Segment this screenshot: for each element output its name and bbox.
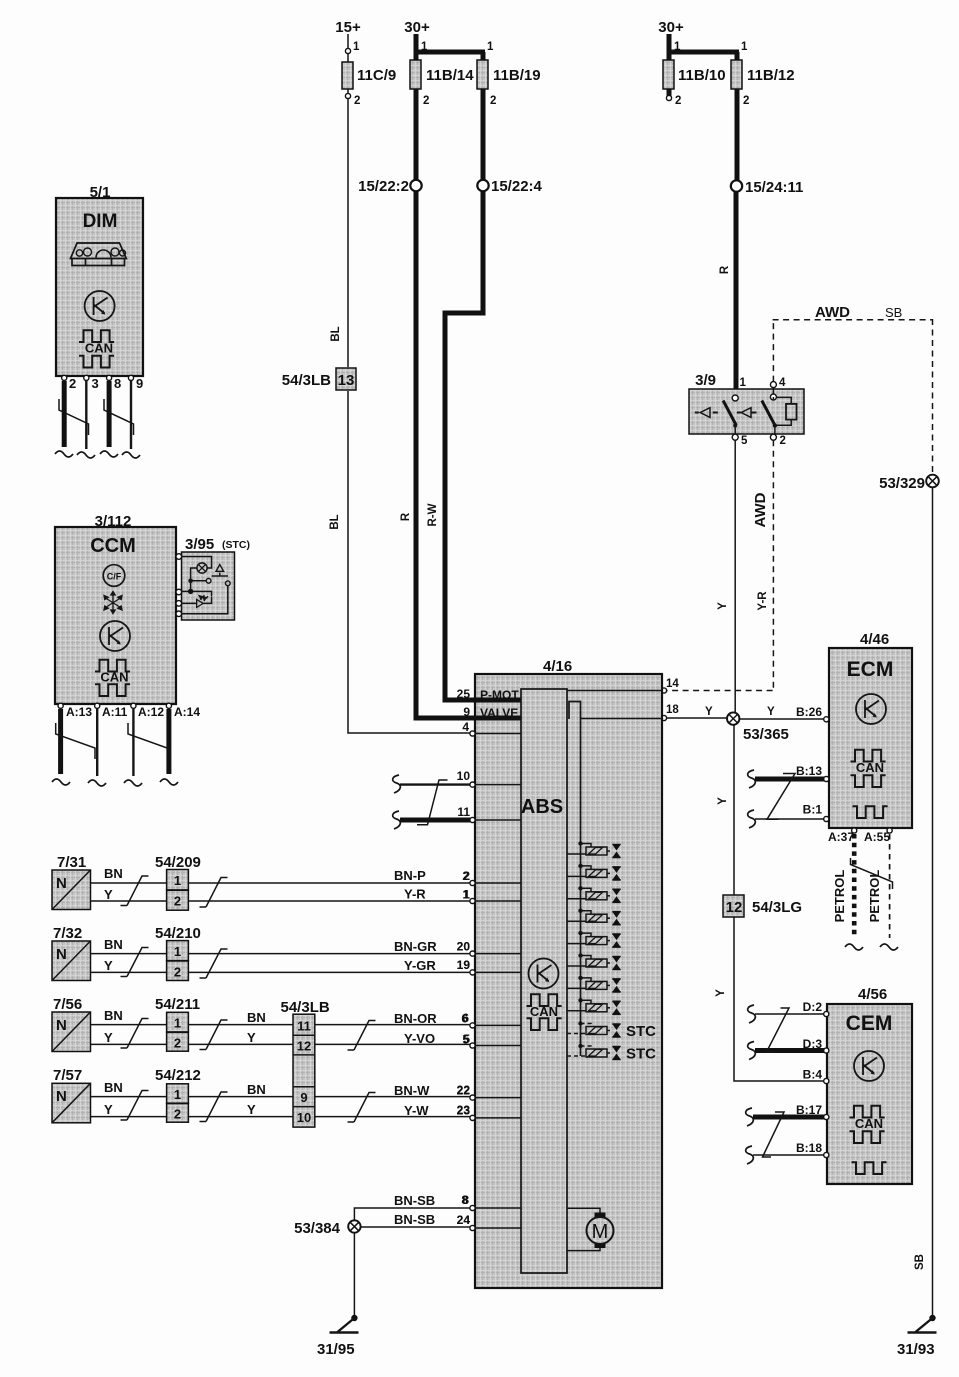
svg-text:VALVE: VALVE [480,706,518,720]
svg-text:ABS: ABS [521,796,563,818]
svg-text:11B/14: 11B/14 [426,67,474,84]
svg-text:8: 8 [462,1193,469,1207]
svg-text:B:4: B:4 [803,1068,823,1082]
svg-text:BN-P: BN-P [394,868,426,883]
svg-text:Y-GR: Y-GR [404,958,436,973]
svg-text:30+: 30+ [404,19,430,36]
svg-text:54/3LB: 54/3LB [282,372,331,389]
svg-text:AWD: AWD [815,304,850,321]
svg-text:CAN: CAN [855,1116,883,1131]
svg-text:AWD: AWD [752,492,769,527]
svg-text:12: 12 [726,899,743,916]
svg-text:2: 2 [423,95,429,107]
svg-text:2: 2 [490,95,496,107]
svg-text:R: R [400,512,412,521]
svg-text:Y: Y [717,797,729,805]
svg-text:P-MOT: P-MOT [480,688,519,702]
svg-text:15/22:2: 15/22:2 [358,178,409,195]
svg-text:8: 8 [114,376,121,391]
svg-text:SB: SB [885,305,902,320]
svg-text:N: N [56,1088,67,1105]
svg-text:BL: BL [329,514,341,529]
svg-text:54/3LG: 54/3LG [752,899,802,916]
svg-text:2: 2 [174,1036,181,1051]
svg-text:1: 1 [174,1087,181,1102]
svg-text:5: 5 [463,1032,470,1046]
svg-text:A:12: A:12 [138,705,164,719]
svg-text:2: 2 [463,869,470,883]
svg-text:Y-R: Y-R [757,591,769,611]
svg-text:Y: Y [104,887,113,902]
svg-text:2: 2 [174,894,181,909]
svg-text:53/365: 53/365 [743,726,789,743]
svg-text:30+: 30+ [658,19,684,36]
svg-text:1: 1 [674,41,681,53]
svg-text:CCM: CCM [90,535,136,557]
svg-text:Y: Y [104,958,113,973]
svg-text:BN: BN [247,1082,266,1097]
svg-text:7/57: 7/57 [53,1067,82,1084]
svg-text:CAN: CAN [856,760,884,775]
svg-text:11: 11 [297,1019,311,1034]
svg-text:15/24:11: 15/24:11 [745,179,803,196]
svg-text:DIM: DIM [83,211,118,232]
svg-text:2: 2 [69,376,76,391]
svg-text:31/93: 31/93 [897,1341,935,1358]
svg-text:1: 1 [421,41,428,53]
svg-text:15+: 15+ [335,19,361,36]
svg-text:A:14: A:14 [174,705,200,719]
svg-text:CAN: CAN [85,341,113,356]
svg-text:18: 18 [666,704,679,716]
svg-text:12: 12 [297,1039,311,1054]
svg-text:11B/10: 11B/10 [678,67,726,84]
svg-text:54/211: 54/211 [155,996,200,1013]
svg-text:4/56: 4/56 [858,986,887,1003]
svg-text:11B/19: 11B/19 [493,67,541,84]
svg-text:C/F: C/F [107,572,122,582]
svg-text:1: 1 [353,41,360,53]
svg-text:3/95: 3/95 [185,536,214,553]
svg-text:BN: BN [104,937,123,952]
svg-text:7/32: 7/32 [53,925,82,942]
svg-text:Y: Y [715,989,727,997]
svg-text:Y-W: Y-W [404,1103,429,1118]
svg-text:3: 3 [92,376,99,391]
svg-text:A:55: A:55 [864,830,890,844]
svg-text:1: 1 [741,41,748,53]
svg-text:2: 2 [675,95,681,107]
svg-text:10: 10 [297,1110,311,1125]
svg-text:9: 9 [300,1090,307,1105]
svg-text:2: 2 [354,95,360,107]
svg-text:BN-W: BN-W [394,1083,430,1098]
svg-text:9: 9 [463,705,470,719]
svg-text:4/46: 4/46 [860,631,889,648]
svg-text:BN: BN [247,1010,266,1025]
svg-text:D:3: D:3 [803,1037,823,1051]
svg-text:BL: BL [330,326,342,341]
svg-text:SB: SB [914,1254,926,1270]
svg-text:15/22:4: 15/22:4 [491,178,543,195]
svg-text:1: 1 [174,873,181,888]
svg-text:CAN: CAN [530,1004,558,1019]
svg-text:N: N [56,1017,67,1034]
svg-text:4: 4 [779,377,786,389]
svg-text:3/112: 3/112 [95,513,132,530]
svg-text:1: 1 [463,888,470,902]
svg-text:4/16: 4/16 [543,658,572,675]
svg-text:53/329: 53/329 [879,475,925,492]
svg-text:3/9: 3/9 [695,372,716,389]
svg-text:PETROL: PETROL [832,870,847,923]
svg-text:R: R [719,265,731,274]
svg-text:13: 13 [338,372,355,389]
svg-text:2: 2 [743,95,749,107]
svg-text:1: 1 [740,377,747,389]
svg-text:STC: STC [626,1023,656,1040]
svg-text:R-W: R-W [427,503,439,526]
svg-text:22: 22 [457,1083,471,1097]
svg-text:N: N [56,875,67,892]
svg-text:D:2: D:2 [803,1000,823,1014]
svg-text:54/3LB: 54/3LB [281,999,330,1016]
svg-text:BN: BN [104,1080,123,1095]
svg-text:A:37: A:37 [828,830,854,844]
svg-text:B:17: B:17 [796,1103,822,1117]
svg-text:Y: Y [104,1030,113,1045]
svg-text:24: 24 [457,1213,471,1227]
svg-text:CAN: CAN [100,670,128,685]
svg-text:Y-VO: Y-VO [404,1031,435,1046]
svg-text:54/210: 54/210 [155,925,201,942]
svg-text:Y: Y [247,1102,256,1117]
svg-text:Y: Y [767,706,775,718]
svg-text:B:13: B:13 [796,764,822,778]
svg-text:B:26: B:26 [796,705,822,719]
svg-text:7/31: 7/31 [57,854,86,871]
svg-text:PETROL: PETROL [867,870,882,923]
svg-text:Y: Y [705,706,713,718]
svg-text:A:13: A:13 [66,705,92,719]
svg-text:31/95: 31/95 [317,1341,355,1358]
svg-text:19: 19 [457,958,471,972]
svg-text:5: 5 [741,435,748,447]
svg-text:N: N [56,946,67,963]
svg-text:11B/12: 11B/12 [747,67,795,84]
svg-text:6: 6 [462,1011,469,1025]
svg-text:CEM: CEM [846,1012,893,1035]
svg-text:ECM: ECM [847,658,894,681]
svg-text:54/209: 54/209 [155,854,201,871]
svg-text:54/212: 54/212 [155,1067,201,1084]
svg-text:1: 1 [174,1016,181,1031]
svg-text:5/1: 5/1 [90,184,111,201]
svg-text:2: 2 [174,965,181,980]
svg-text:BN: BN [104,866,123,881]
svg-text:B:1: B:1 [803,803,823,817]
svg-text:23: 23 [457,1103,471,1117]
svg-text:STC: STC [626,1046,656,1063]
svg-text:2: 2 [780,435,786,447]
svg-text:Y-R: Y-R [404,887,426,902]
svg-text:BN-GR: BN-GR [394,939,437,954]
svg-text:BN: BN [104,1008,123,1023]
svg-text:B:18: B:18 [796,1141,822,1155]
svg-text:Y: Y [717,602,729,610]
svg-text:14: 14 [666,678,679,690]
svg-text:11C/9: 11C/9 [357,67,396,84]
svg-text:BN-SB: BN-SB [394,1212,435,1227]
svg-text:20: 20 [457,940,471,954]
svg-text:2: 2 [174,1107,181,1122]
svg-text:7/56: 7/56 [53,996,82,1013]
svg-text:53/384: 53/384 [294,1220,341,1237]
svg-text:M: M [592,1221,609,1243]
svg-text:BN-SB: BN-SB [394,1193,435,1208]
svg-text:BN-OR: BN-OR [394,1011,437,1026]
svg-text:1: 1 [174,944,181,959]
svg-text:25: 25 [457,687,471,701]
svg-text:(STC): (STC) [222,539,250,551]
svg-text:11: 11 [457,805,470,819]
svg-text:10: 10 [457,769,471,783]
svg-text:Y: Y [247,1030,256,1045]
svg-text:A:11: A:11 [102,705,128,719]
svg-text:1: 1 [487,41,494,53]
svg-text:4: 4 [462,720,469,734]
svg-text:9: 9 [136,376,143,391]
svg-text:Y: Y [104,1102,113,1117]
